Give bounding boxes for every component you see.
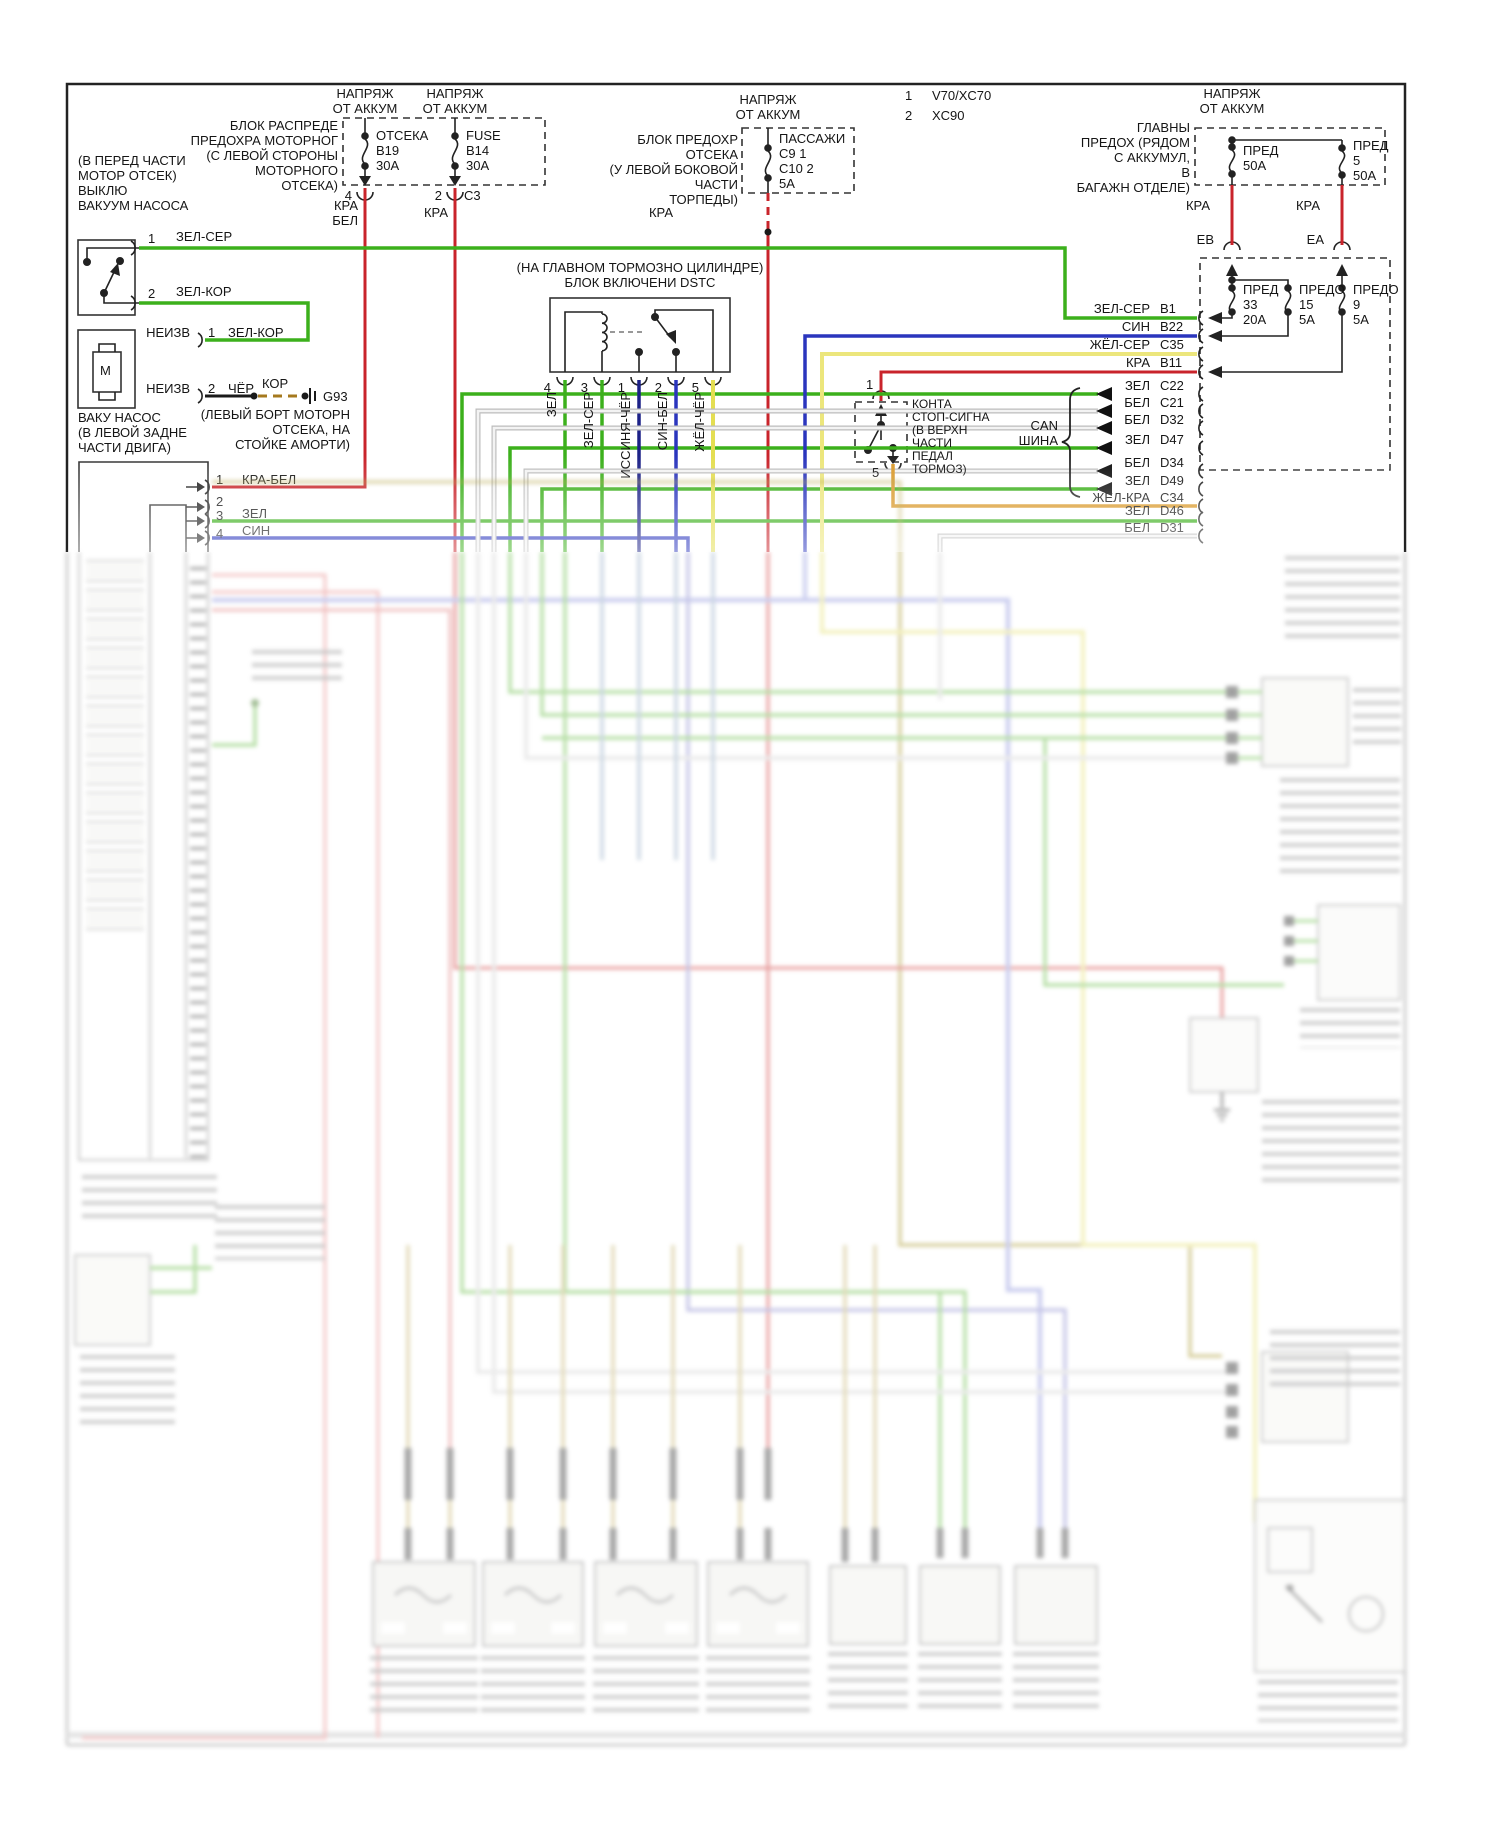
wiring-diagram-page: НАПРЯЖ ОТ АККУМ НАПРЯЖ ОТ АККУМ НАПРЯЖ О… <box>0 0 1500 1828</box>
blurred-text-right-2 <box>1353 688 1401 748</box>
blurred-text-left-mid <box>215 1205 325 1260</box>
blurred-lines <box>0 0 1500 1828</box>
blurred-text-ecu-label <box>82 1175 217 1227</box>
blurred-lower-schematic <box>0 0 1500 1828</box>
blurred-label-block5 <box>828 1652 908 1710</box>
blurred-text-right-6 <box>1270 1330 1400 1390</box>
blurred-text-right-5 <box>1262 1100 1400 1185</box>
blurred-label-block7 <box>1013 1652 1099 1710</box>
blurred-text-bottom-left <box>80 1355 175 1430</box>
ecu-pin-pill-column <box>86 560 144 937</box>
blurred-label-block2 <box>481 1656 585 1720</box>
blurred-text-right-4 <box>1300 1008 1400 1048</box>
blurred-label-bottom-right <box>1258 1680 1398 1722</box>
blurred-text-splice <box>252 650 342 684</box>
blurred-text-right-3 <box>1280 778 1400 878</box>
blurred-label-block3 <box>593 1656 699 1720</box>
blurred-label-block6 <box>918 1652 1002 1710</box>
ecu-pin-rail <box>190 556 206 1160</box>
blurred-text-right-1 <box>1285 556 1400 646</box>
blurred-label-block1 <box>370 1656 478 1720</box>
blurred-label-block4 <box>706 1656 810 1720</box>
